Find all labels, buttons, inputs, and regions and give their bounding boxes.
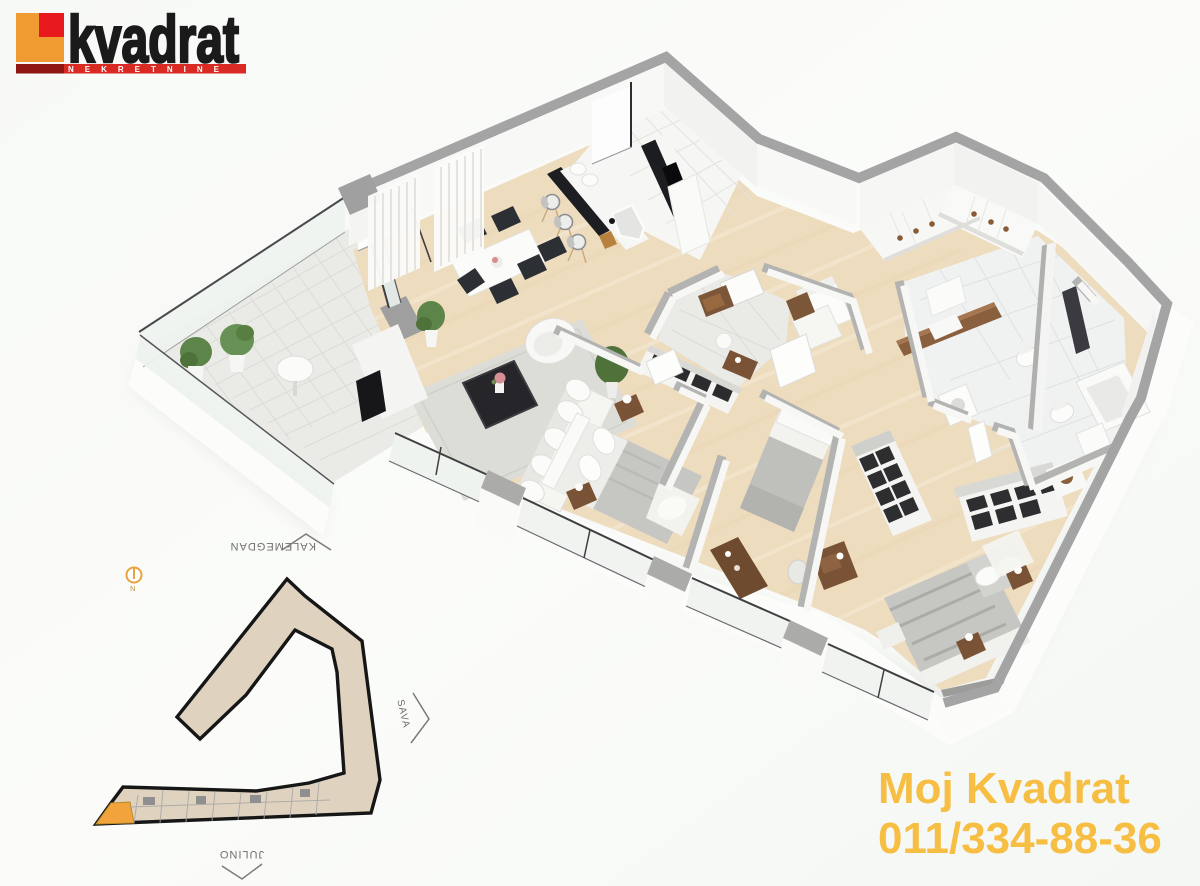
svg-text:Moj Kvadrat: Moj Kvadrat — [878, 764, 1130, 813]
svg-text:KALEMEGDAN: KALEMEGDAN — [230, 540, 316, 552]
svg-text:N: N — [130, 584, 135, 593]
svg-text:011/334-88-36: 011/334-88-36 — [878, 814, 1162, 863]
svg-text:JULINO: JULINO — [219, 848, 264, 860]
svg-text:kvadrat: kvadrat — [68, 2, 239, 76]
